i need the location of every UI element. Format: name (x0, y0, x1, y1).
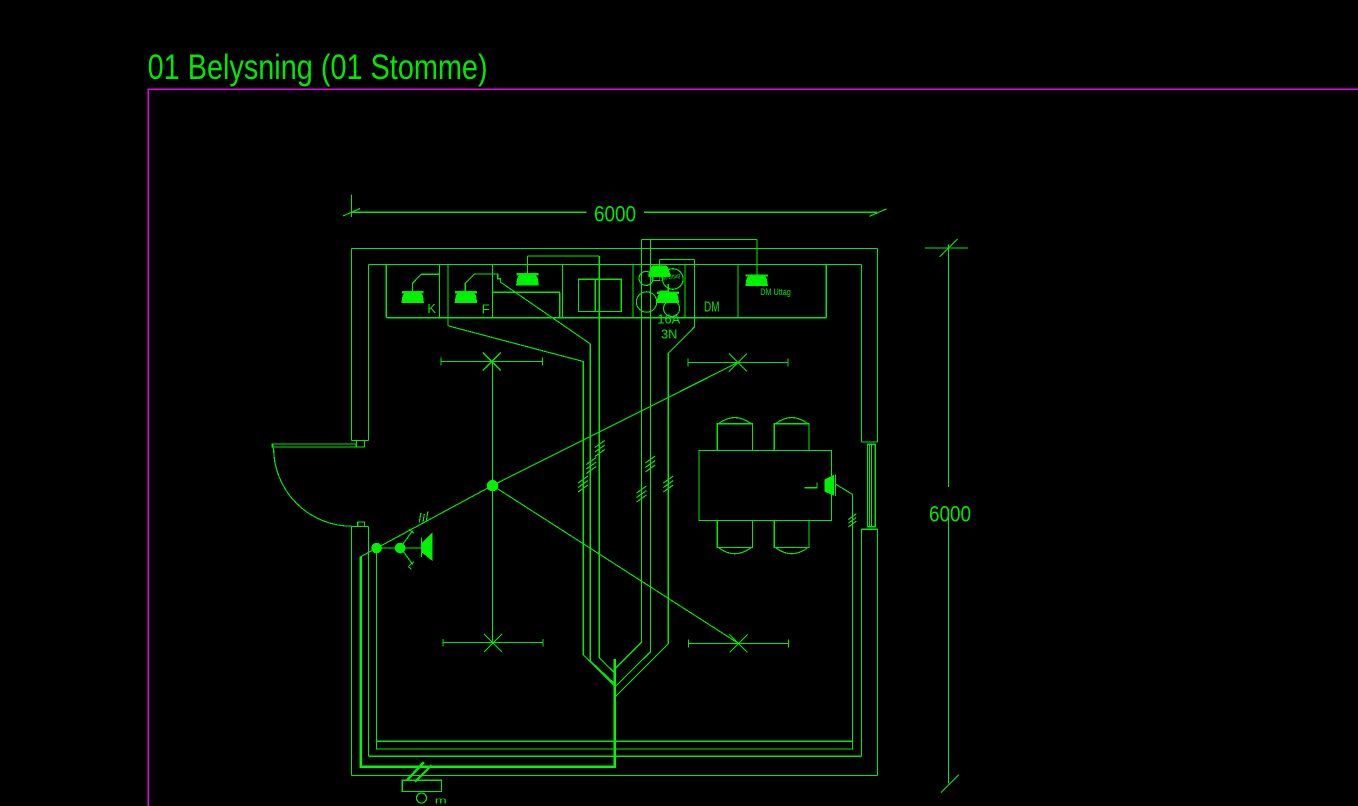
svg-text:3N: 3N (661, 327, 677, 342)
svg-text:6000: 6000 (929, 501, 971, 526)
svg-text:F: F (482, 302, 490, 317)
svg-text:16A: 16A (657, 311, 680, 326)
svg-text:m: m (435, 796, 447, 806)
svg-text:K: K (427, 301, 436, 316)
svg-text:DM: DM (704, 300, 720, 316)
svg-text:01 Belysning (01 Stomme): 01 Belysning (01 Stomme) (148, 48, 488, 87)
svg-text:6000: 6000 (594, 202, 636, 227)
svg-text:DM Uttag: DM Uttag (760, 287, 791, 297)
